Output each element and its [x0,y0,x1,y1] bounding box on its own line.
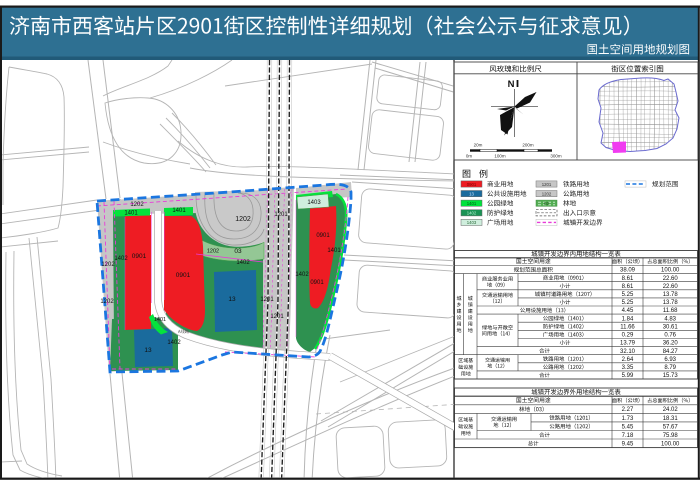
svg-text:1202: 1202 [207,249,219,255]
svg-text:8.61: 8.61 [622,284,634,290]
svg-text:1201: 1201 [274,212,288,218]
svg-text:1401: 1401 [327,248,341,254]
svg-text:03: 03 [234,248,242,255]
svg-text:13.78: 13.78 [663,292,679,298]
svg-text:N: N [508,79,515,90]
svg-text:13: 13 [228,296,236,303]
svg-text:1401: 1401 [154,317,166,323]
svg-text:0901: 0901 [467,182,477,187]
svg-text:1202: 1202 [542,191,552,196]
svg-text:1201: 1201 [260,297,274,303]
svg-text:1401: 1401 [124,211,138,217]
svg-text:3.35: 3.35 [622,365,634,371]
svg-text:300m: 300m [550,154,562,159]
svg-text:22.60: 22.60 [663,284,679,290]
svg-text:8.79: 8.79 [664,365,676,371]
svg-text:13: 13 [144,347,152,354]
svg-text:5.99: 5.99 [622,373,634,379]
svg-text:1402: 1402 [114,256,128,262]
svg-text:4.45: 4.45 [622,308,634,314]
svg-text:1202: 1202 [100,299,114,305]
svg-text:1201: 1201 [542,182,552,187]
svg-text:6.93: 6.93 [664,357,676,363]
svg-text:1202: 1202 [235,216,251,223]
svg-text:0901: 0901 [176,272,191,279]
svg-text:24.02: 24.02 [663,407,679,413]
svg-text:5.25: 5.25 [622,292,634,298]
svg-text:20m: 20m [474,143,483,148]
svg-text:1402: 1402 [236,260,250,266]
svg-text:200m: 200m [522,143,534,148]
svg-text:0901: 0901 [310,280,324,286]
svg-text:1402: 1402 [167,340,181,346]
svg-text:30.61: 30.61 [663,325,679,331]
svg-text:1401: 1401 [467,201,477,206]
svg-text:1401: 1401 [172,208,186,214]
svg-text:1402: 1402 [467,211,477,216]
svg-text:9.45: 9.45 [622,442,634,448]
svg-text:11.68: 11.68 [663,308,678,314]
svg-text:1403: 1403 [307,200,321,206]
svg-text:18.31: 18.31 [663,416,679,422]
svg-text:4.83: 4.83 [664,316,676,322]
svg-text:2.27: 2.27 [622,407,634,413]
svg-text:11.66: 11.66 [620,325,635,331]
svg-text:1202: 1202 [101,262,115,268]
svg-text:13.79: 13.79 [620,341,636,347]
svg-text:13.78: 13.78 [663,300,679,306]
svg-text:2.64: 2.64 [622,357,634,363]
svg-text:38.09: 38.09 [620,268,636,274]
svg-text:100.00: 100.00 [661,442,680,448]
svg-text:36.20: 36.20 [663,341,679,347]
svg-text:8.61: 8.61 [622,276,634,282]
svg-text:03: 03 [544,201,549,206]
svg-text:84.27: 84.27 [663,349,679,355]
svg-text:0.29: 0.29 [622,333,634,339]
svg-text:0901: 0901 [132,253,147,260]
svg-text:1403: 1403 [467,220,477,225]
svg-text:0901: 0901 [316,233,330,239]
svg-text:15.73: 15.73 [663,373,679,379]
svg-text:7.18: 7.18 [622,433,634,439]
svg-text:100.00: 100.00 [661,268,680,274]
svg-text:5.45: 5.45 [622,424,634,430]
svg-text:22.60: 22.60 [663,276,679,282]
svg-text:1202: 1202 [130,202,144,208]
svg-text:0.76: 0.76 [664,333,676,339]
svg-text:75.98: 75.98 [663,433,679,439]
svg-text:100m: 100m [494,154,506,159]
svg-text:32.10: 32.10 [620,349,636,355]
svg-text:0m: 0m [466,154,473,159]
svg-text:1201: 1201 [270,314,284,320]
svg-text:57.67: 57.67 [663,424,679,430]
svg-text:1402: 1402 [295,272,309,278]
svg-text:1.84: 1.84 [622,316,634,322]
svg-text:5.25: 5.25 [622,300,634,306]
svg-text:13: 13 [469,191,474,196]
svg-text:1.73: 1.73 [622,416,634,422]
